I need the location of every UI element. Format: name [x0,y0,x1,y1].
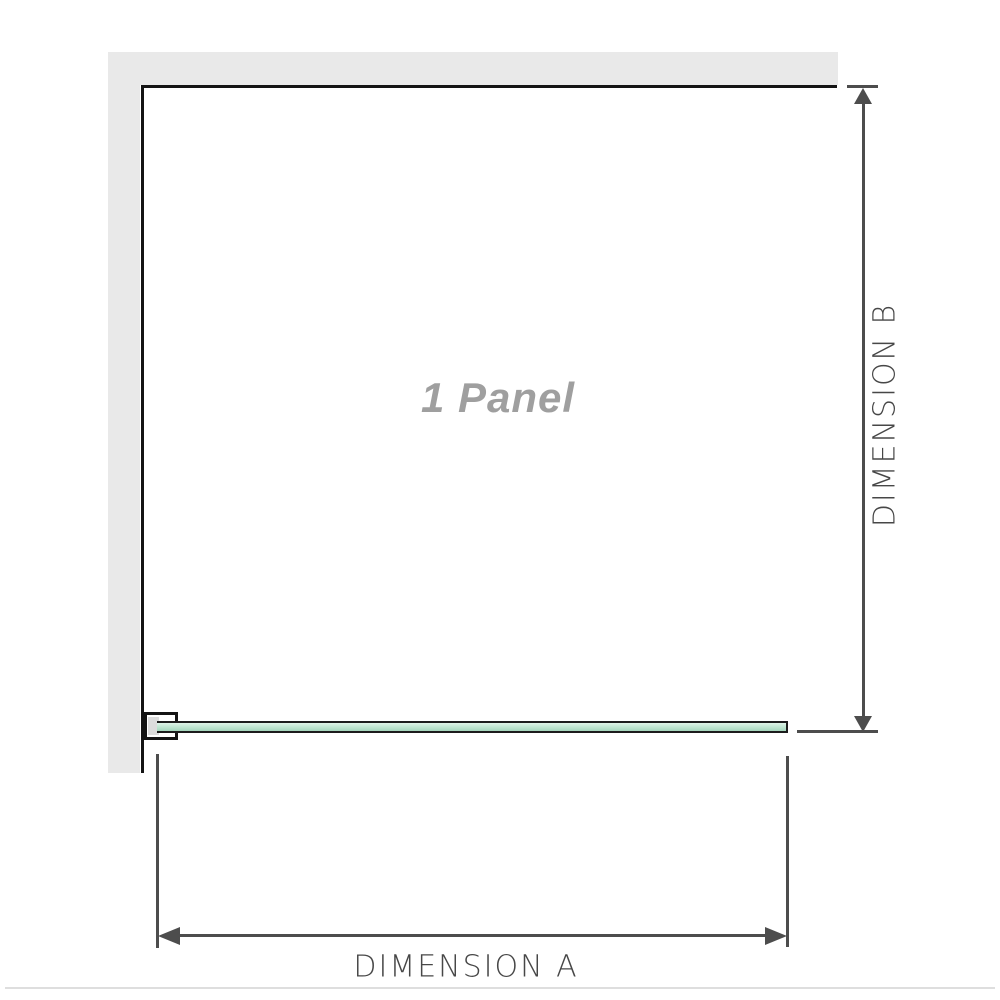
left-wall [108,52,140,773]
dimension-b-label: DIMENSION B [868,303,903,527]
arrow-left-icon [158,927,180,945]
dimension-a-line [172,934,774,937]
arrow-down-icon [854,716,872,732]
bottom-separator [5,987,995,989]
arrow-up-icon [854,88,872,104]
dimension-a-extension-left [156,754,159,948]
left-wall-edge [141,85,144,773]
dimension-a-extension-right [786,756,789,947]
top-wall-edge [141,85,837,88]
top-wall [108,52,838,85]
panel-dimension-diagram: 1 Panel DIMENSION B DIMENSION A [0,0,1000,1000]
glass-panel [157,721,788,733]
dimension-b-line [862,95,865,723]
arrow-right-icon [765,927,787,945]
dimension-a-label: DIMENSION A [353,950,578,985]
panel-label: 1 Panel [421,374,575,422]
